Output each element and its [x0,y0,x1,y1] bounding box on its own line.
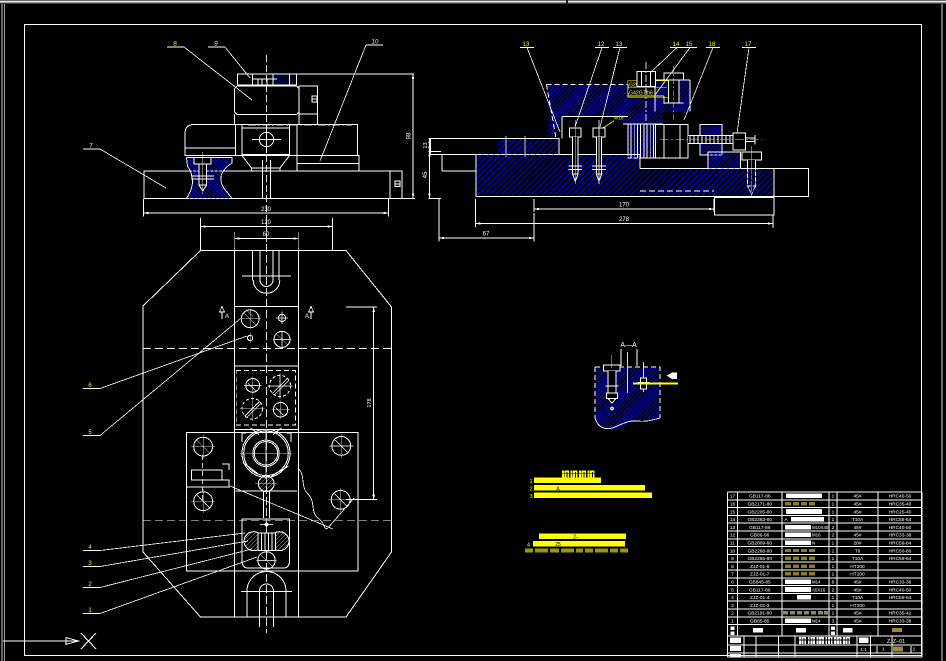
svg-text:GB2171-80: GB2171-80 [747,502,772,508]
svg-text:GB2191-80: GB2191-80 [747,611,772,617]
svg-text:1:1: 1:1 [860,647,867,652]
svg-text:11: 11 [730,541,735,547]
svg-text:1: 1 [913,647,916,652]
svg-text:GB117-86: GB117-86 [749,494,771,500]
svg-text:HT200: HT200 [850,564,865,570]
svg-text:GB2205-80: GB2205-80 [747,509,772,515]
svg-text:3: 3 [731,603,734,609]
svg-text:1: 1 [832,509,835,515]
svg-text:1: 1 [832,556,835,562]
svg-text:1: 1 [832,611,835,617]
svg-text:12: 12 [730,533,736,539]
svg-text:10: 10 [730,548,736,554]
svg-text:GB117-86: GB117-86 [749,525,771,531]
svg-text:15: 15 [730,509,736,515]
svg-text:14: 14 [730,517,736,523]
svg-text:6: 6 [731,580,734,586]
svg-text:M10X40: M10X40 [812,525,829,530]
svg-text:20#: 20# [853,541,861,547]
svg-text:9: 9 [214,41,218,48]
svg-text:GB2268-80: GB2268-80 [747,548,772,554]
svg-text:67: 67 [483,232,490,238]
svg-text:HRC35-40: HRC35-40 [889,502,912,508]
svg-text:HRC33-38: HRC33-38 [889,533,912,539]
svg-text:5: 5 [731,587,734,593]
svg-text:13: 13 [423,142,429,148]
svg-text:HRC33-38: HRC33-38 [889,619,912,625]
svg-text:3: 3 [832,619,835,625]
svg-text:278: 278 [619,217,630,223]
svg-text:HRC58-64: HRC58-64 [889,595,912,601]
svg-text:17: 17 [730,494,736,500]
svg-text:25: 25 [555,542,561,548]
svg-text:1: 1 [882,647,885,653]
svg-text:HRC50-60: HRC50-60 [889,548,912,554]
svg-text:T10A: T10A [852,556,864,562]
svg-text:M14: M14 [812,619,821,624]
svg-text:ZJZ-01-7: ZJZ-01-7 [750,572,770,578]
svg-text:GB845-85: GB845-85 [749,580,771,586]
svg-text:120: 120 [261,220,272,226]
svg-text:45#: 45# [853,619,861,625]
svg-text:2: 2 [832,587,835,593]
svg-text:6: 6 [832,580,835,586]
svg-text:GB85-85: GB85-85 [750,619,770,625]
svg-text:1: 1 [832,541,835,547]
svg-text:45#: 45# [853,611,861,617]
svg-text:7: 7 [731,572,734,578]
svg-text:4: 4 [527,543,530,549]
svg-text:1: 1 [832,517,835,523]
svg-text:GB2265-80: GB2265-80 [747,556,772,562]
svg-text:45: 45 [423,171,429,178]
svg-text:HT200: HT200 [850,603,865,609]
svg-text:8: 8 [173,41,177,48]
svg-text:45#: 45# [853,494,861,500]
svg-text:HT200: HT200 [850,572,865,578]
svg-text:GB86-96: GB86-96 [750,533,770,539]
svg-text:1: 1 [832,494,835,500]
svg-text:1: 1 [832,572,835,578]
svg-text:1: 1 [731,619,734,625]
svg-text:45#: 45# [853,533,861,539]
svg-text:Φ16: Φ16 [614,116,624,122]
svg-text:1: 1 [832,595,835,601]
svg-text:A5X16: A5X16 [812,587,826,592]
svg-text:ZJZ–01: ZJZ–01 [887,639,905,645]
svg-text:1: 1 [832,548,835,554]
svg-text:M14: M14 [812,580,821,585]
svg-text:N: N [812,541,815,546]
svg-text:HRC40-50: HRC40-50 [889,587,912,593]
svg-text:4: 4 [731,595,734,601]
svg-text:10: 10 [371,39,379,46]
svg-text:HRC40-50: HRC40-50 [889,525,912,531]
svg-text:2: 2 [832,525,835,531]
svg-text:T10A: T10A [852,595,864,601]
svg-text:178: 178 [367,398,373,407]
svg-text:45#: 45# [853,580,861,586]
svg-text:HRC58-64: HRC58-64 [889,517,912,523]
svg-text:GB2809-60: GB2809-60 [747,541,772,547]
svg-text:2–: 2– [573,535,579,541]
svg-text:8: 8 [731,564,734,570]
svg-text:M16: M16 [812,533,821,538]
svg-text:45#: 45# [853,587,861,593]
svg-text:230: 230 [261,207,272,213]
svg-text:16: 16 [730,502,736,508]
svg-text:9: 9 [731,556,734,562]
svg-text:HRC25-40: HRC25-40 [889,509,912,515]
svg-text:HRC40-50: HRC40-50 [889,494,912,500]
svg-text:HRC59-64: HRC59-64 [889,541,912,547]
svg-text:ZJZ-01-4: ZJZ-01-4 [750,595,770,601]
svg-text:2: 2 [529,487,532,493]
svg-text:60: 60 [263,232,270,238]
svg-text:1: 1 [832,603,835,609]
svg-text:GB2263-80: GB2263-80 [747,517,772,523]
svg-text:45#: 45# [853,525,861,531]
svg-text:1: 1 [529,479,532,485]
svg-text:A—A: A—A [620,342,637,349]
svg-text:45#: 45# [853,502,861,508]
svg-text:7: 7 [89,143,93,150]
svg-text:ZJZ-01-8: ZJZ-01-8 [750,564,770,570]
svg-text:ZJZ-01-3: ZJZ-01-3 [750,603,770,609]
svg-text:HRC33-38: HRC33-38 [889,580,912,586]
svg-text:T8: T8 [855,548,861,554]
svg-text:1: 1 [832,502,835,508]
svg-text:HRC58-64: HRC58-64 [889,556,912,562]
svg-text:98: 98 [407,132,413,139]
svg-text:A: A [305,314,309,320]
svg-text:13: 13 [730,525,736,531]
svg-text:A: A [225,314,229,320]
svg-text:GB117-86: GB117-86 [749,587,771,593]
svg-text:170: 170 [619,203,630,209]
svg-text:1: 1 [832,564,835,570]
svg-text:3: 3 [529,494,532,500]
svg-text:HRC35-42: HRC35-42 [889,611,912,617]
svg-text:T10A: T10A [852,517,864,523]
svg-text:45#: 45# [853,509,861,515]
svg-text:2: 2 [832,533,835,539]
svg-text:2: 2 [731,611,734,617]
